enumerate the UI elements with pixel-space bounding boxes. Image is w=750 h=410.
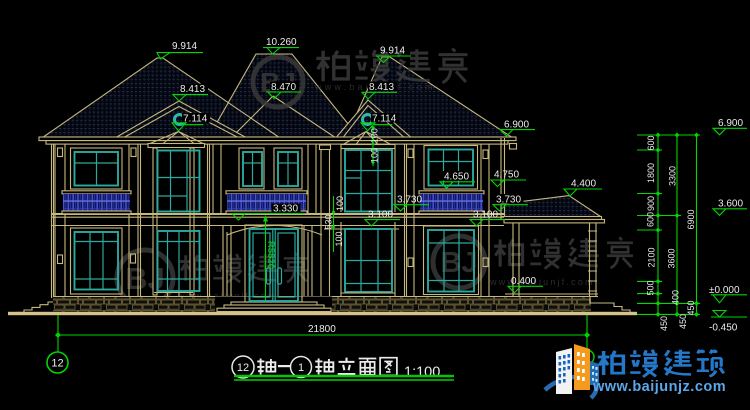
svg-text:3.330: 3.330 xyxy=(273,204,298,215)
svg-text:100: 100 xyxy=(335,196,345,211)
svg-text:100: 100 xyxy=(334,231,344,246)
svg-text:4.650: 4.650 xyxy=(444,171,469,182)
svg-text:450: 450 xyxy=(686,300,696,315)
svg-text:600: 600 xyxy=(646,135,656,150)
svg-text:2100: 2100 xyxy=(647,247,657,267)
svg-text:6.900: 6.900 xyxy=(718,118,743,129)
svg-text:6900: 6900 xyxy=(686,209,696,229)
svg-text:www.baijunjf.com: www.baijunjf.com xyxy=(489,277,595,287)
svg-text:0.400: 0.400 xyxy=(511,276,536,287)
svg-text:8.413: 8.413 xyxy=(180,84,205,95)
svg-text:9.914: 9.914 xyxy=(172,41,197,52)
svg-text:4.750: 4.750 xyxy=(494,170,519,181)
svg-text:600: 600 xyxy=(646,212,656,227)
svg-text:450: 450 xyxy=(659,316,669,331)
svg-text:100: 100 xyxy=(370,148,380,163)
svg-text:3600: 3600 xyxy=(667,248,677,268)
svg-text:1800: 1800 xyxy=(646,163,656,183)
svg-text:4.400: 4.400 xyxy=(571,179,596,190)
svg-text:3.730: 3.730 xyxy=(496,194,521,205)
svg-text:1:100: 1:100 xyxy=(404,365,440,381)
svg-text:3.730: 3.730 xyxy=(397,194,422,205)
svg-text:400: 400 xyxy=(671,290,681,305)
svg-text:900: 900 xyxy=(646,196,656,211)
svg-text:R5520: R5520 xyxy=(265,241,276,269)
svg-text:-0.450: -0.450 xyxy=(709,323,738,334)
svg-text:12: 12 xyxy=(237,362,249,374)
svg-text:12: 12 xyxy=(51,358,63,370)
svg-text:1: 1 xyxy=(298,362,304,374)
svg-text:21800: 21800 xyxy=(308,324,336,335)
svg-text:9.914: 9.914 xyxy=(380,46,405,57)
svg-text:7.114: 7.114 xyxy=(372,114,397,125)
svg-text:530: 530 xyxy=(324,214,334,229)
svg-text:3.100: 3.100 xyxy=(473,209,498,220)
svg-text:3.600: 3.600 xyxy=(718,199,743,210)
svg-text:www.baijunjz.com: www.baijunjz.com xyxy=(592,379,726,395)
svg-text:10.260: 10.260 xyxy=(266,37,297,48)
svg-text:6.900: 6.900 xyxy=(504,119,529,130)
svg-text:3.100: 3.100 xyxy=(368,209,393,220)
svg-text:8.470: 8.470 xyxy=(271,82,296,93)
svg-text:100: 100 xyxy=(370,128,380,143)
svg-text:500: 500 xyxy=(646,280,656,295)
svg-text:8.413: 8.413 xyxy=(369,82,394,93)
svg-text:7.114: 7.114 xyxy=(183,114,208,125)
svg-text:3300: 3300 xyxy=(668,166,678,186)
